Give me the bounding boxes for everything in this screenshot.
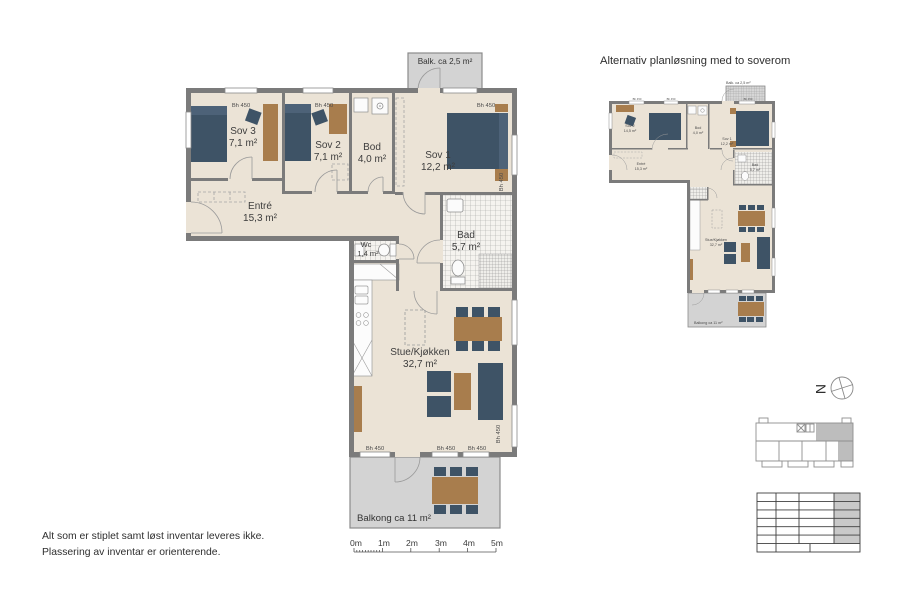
sov3-desk <box>263 104 278 161</box>
floor-plan-sheet: Balk. ca 2,5 m² Balkong ca 11 m² <box>0 0 900 600</box>
scale-bar: 0m 1m 2m 3m 4m 5m <box>350 538 503 552</box>
dining-table <box>454 317 502 341</box>
stue-label: Stue/Kjøkken <box>390 347 449 358</box>
svg-text:2m: 2m <box>406 538 418 548</box>
armchair <box>427 396 451 417</box>
disclaimer-text: Alt som er stiplet samt løst inventar le… <box>42 531 264 558</box>
sov3-pillow <box>191 106 227 115</box>
sov1-pillow <box>499 113 508 169</box>
sov2-label: Sov 2 <box>315 140 341 151</box>
alt-balcony-bottom: Balkong ca 11 m² <box>688 293 766 327</box>
bad-label: Bad <box>457 230 475 241</box>
svg-text:15,3 m²: 15,3 m² <box>635 167 648 171</box>
alt-plan: Alternativ planløsning med to soverom Ba… <box>600 55 790 327</box>
svg-text:Bh 450: Bh 450 <box>315 103 333 109</box>
sov1-bed <box>447 113 508 169</box>
wc-area: 1,4 m² <box>357 249 379 258</box>
svg-text:Bh 450: Bh 450 <box>477 103 495 109</box>
main-plan: Balk. ca 2,5 m² Balkong ca 11 m² <box>186 53 517 528</box>
stue-area: 32,7 m² <box>403 359 438 370</box>
alt-plan-title: Alternativ planløsning med to soverom <box>600 55 790 67</box>
main-balcony-bottom: Balkong ca 11 m² <box>350 457 500 528</box>
svg-text:Sov 1: Sov 1 <box>722 137 731 141</box>
sofa <box>478 363 503 420</box>
alt-balkong-label: Balkong ca 11 m² <box>694 321 723 325</box>
bod-area: 4,0 m² <box>358 154 387 165</box>
svg-text:Bod: Bod <box>695 126 702 130</box>
compass-icon <box>831 377 853 399</box>
svg-text:Bh 450: Bh 450 <box>232 103 250 109</box>
toilet-icon <box>452 260 464 276</box>
svg-text:Sov 2: Sov 2 <box>625 124 634 128</box>
svg-text:Bad: Bad <box>752 163 759 167</box>
wc-label: Wc <box>361 240 372 249</box>
toilet-icon <box>379 244 390 256</box>
sov3-label: Sov 3 <box>230 126 256 137</box>
svg-text:Bh 450: Bh 450 <box>437 446 455 452</box>
north-label: N <box>813 384 829 394</box>
svg-text:Bh 450: Bh 450 <box>633 97 642 101</box>
svg-text:12,2 m²: 12,2 m² <box>721 142 734 146</box>
svg-text:Bh 450: Bh 450 <box>744 97 753 101</box>
key-plan-highlight <box>816 423 853 461</box>
north-arrow: N <box>813 377 853 399</box>
entre-label: Entré <box>248 201 272 212</box>
svg-text:3m: 3m <box>435 538 447 548</box>
sov1-area: 12,2 m² <box>421 162 456 173</box>
sov1-shelf <box>495 104 508 112</box>
svg-text:5,7 m²: 5,7 m² <box>750 168 761 172</box>
coffee-table <box>454 373 471 410</box>
svg-text:1m: 1m <box>378 538 390 548</box>
svg-text:Bh 450: Bh 450 <box>468 446 486 452</box>
sov2-area: 7,1 m² <box>314 152 343 163</box>
sov2-pillow <box>285 104 311 113</box>
balk-top-label: Balk. ca 2,5 m² <box>418 57 473 66</box>
bod-label: Bod <box>363 142 381 153</box>
floor-plan-drawing: Balk. ca 2,5 m² Balkong ca 11 m² <box>0 0 900 600</box>
armchair <box>427 371 451 392</box>
svg-text:Entré: Entré <box>637 162 646 166</box>
sov3-area: 7,1 m² <box>229 138 258 149</box>
entre-area: 15,3 m² <box>243 213 278 224</box>
svg-text:32,7 m²: 32,7 m² <box>710 243 723 247</box>
svg-text:Bh 450: Bh 450 <box>496 425 502 443</box>
svg-text:0m: 0m <box>350 538 362 548</box>
sov1-label: Sov 1 <box>425 150 451 161</box>
svg-text:4m: 4m <box>463 538 475 548</box>
svg-text:Bh 450: Bh 450 <box>366 446 384 452</box>
stairs-icon <box>797 424 814 432</box>
sink-icon <box>447 199 463 212</box>
svg-text:5m: 5m <box>491 538 503 548</box>
bad-area: 5,7 m² <box>452 242 481 253</box>
disclaimer-line2: Plassering av inventar er orienterende. <box>42 547 220 558</box>
key-plan <box>756 418 853 467</box>
main-balcony-top: Balk. ca 2,5 m² <box>408 53 482 90</box>
balkong-label: Balkong ca 11 m² <box>357 513 432 524</box>
svg-text:Bh 450: Bh 450 <box>667 97 676 101</box>
svg-text:14,5 m²: 14,5 m² <box>624 129 637 133</box>
svg-text:4,0 m²: 4,0 m² <box>693 131 704 135</box>
balcony-dining-set <box>432 467 478 514</box>
title-block-table <box>757 493 860 552</box>
svg-text:Bh 450: Bh 450 <box>499 173 505 191</box>
shower-area <box>479 254 512 288</box>
disclaimer-line1: Alt som er stiplet samt løst inventar le… <box>42 531 264 542</box>
alt-balk-label: Balk. ca 2,5 m² <box>726 81 751 85</box>
dining-set <box>454 307 502 351</box>
svg-text:Stue/Kjøkken: Stue/Kjøkken <box>705 238 727 242</box>
